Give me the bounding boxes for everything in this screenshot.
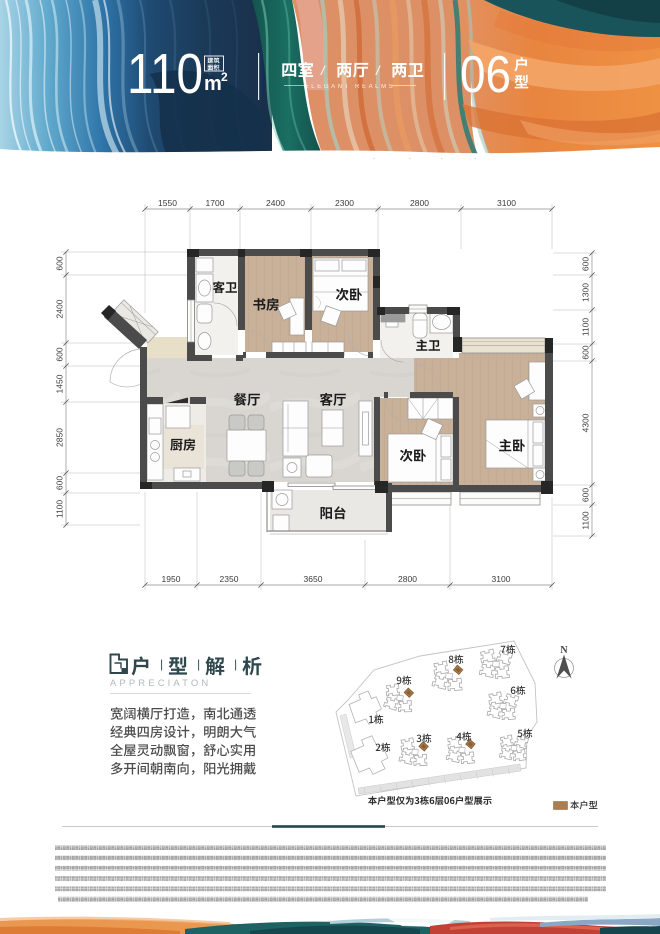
svg-text:1550: 1550 <box>158 198 177 208</box>
svg-text:m: m <box>204 73 222 95</box>
svg-text:600: 600 <box>581 345 591 359</box>
svg-text:1450: 1450 <box>55 374 65 393</box>
svg-text:2850: 2850 <box>55 428 65 447</box>
svg-text:600: 600 <box>581 257 591 271</box>
svg-text:600: 600 <box>55 476 65 490</box>
svg-text:3650: 3650 <box>304 574 323 584</box>
svg-text:1950: 1950 <box>162 574 181 584</box>
svg-text:1100: 1100 <box>581 318 591 337</box>
svg-text:1100: 1100 <box>55 500 65 519</box>
svg-text:06: 06 <box>460 46 511 104</box>
svg-text:2400: 2400 <box>55 299 65 318</box>
svg-text:2300: 2300 <box>335 198 354 208</box>
svg-text:4300: 4300 <box>581 413 591 432</box>
svg-text:600: 600 <box>55 347 65 361</box>
svg-text:2: 2 <box>221 70 228 84</box>
svg-text:N: N <box>560 645 568 656</box>
svg-text:2800: 2800 <box>398 574 417 584</box>
svg-text:600: 600 <box>55 256 65 270</box>
svg-text:3100: 3100 <box>497 198 516 208</box>
svg-text:1100: 1100 <box>581 511 591 530</box>
svg-text:1700: 1700 <box>206 198 225 208</box>
svg-text:2350: 2350 <box>220 574 239 584</box>
svg-text:ELEGANT REALMS: ELEGANT REALMS <box>305 84 396 90</box>
svg-text:APPRECIATON: APPRECIATON <box>110 678 211 689</box>
svg-text:2400: 2400 <box>266 198 285 208</box>
svg-text:110: 110 <box>127 42 203 106</box>
svg-text:3100: 3100 <box>492 574 511 584</box>
svg-text:1300: 1300 <box>581 283 591 302</box>
svg-text:600: 600 <box>581 488 591 502</box>
svg-text:2800: 2800 <box>410 198 429 208</box>
